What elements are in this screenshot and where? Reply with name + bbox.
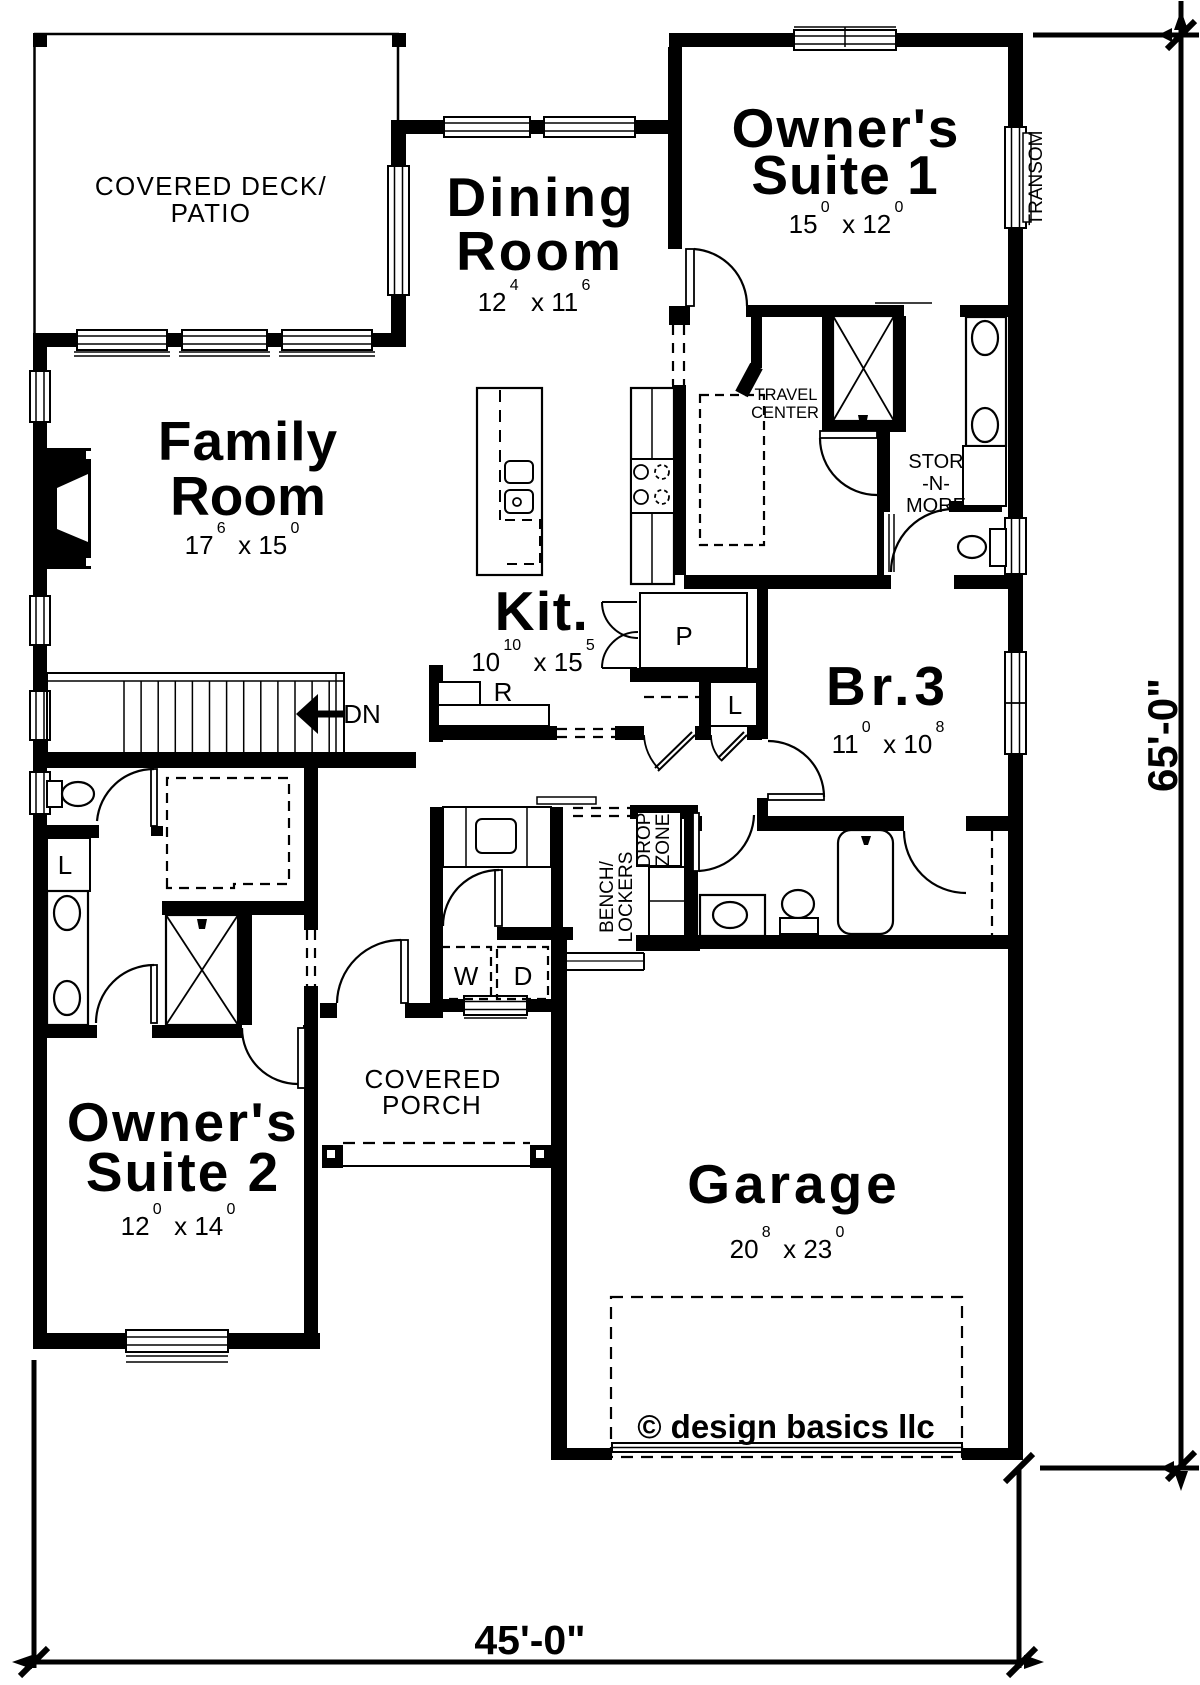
svg-text:P: P xyxy=(675,621,692,651)
svg-text:COVERED DECK/: COVERED DECK/ xyxy=(95,171,327,201)
svg-text:DN: DN xyxy=(343,699,381,729)
svg-text:W: W xyxy=(454,961,479,991)
svg-text:TRANSOM: TRANSOM xyxy=(1026,131,1047,226)
svg-text:Suite 1: Suite 1 xyxy=(751,144,938,206)
svg-text:ZONE: ZONE xyxy=(653,814,674,867)
svg-text:Room: Room xyxy=(170,465,326,527)
svg-text:-N-: -N- xyxy=(922,473,950,495)
svg-text:45'-0": 45'-0" xyxy=(474,1617,585,1663)
svg-text:L: L xyxy=(728,690,742,720)
svg-text:Br.3: Br.3 xyxy=(826,655,950,717)
svg-text:D: D xyxy=(514,961,533,991)
svg-text:65'-0": 65'-0" xyxy=(1139,678,1186,792)
svg-text:DROP: DROP xyxy=(634,813,655,868)
svg-text:PORCH: PORCH xyxy=(382,1090,482,1120)
svg-text:LOCKERS: LOCKERS xyxy=(616,852,637,943)
svg-text:STOR: STOR xyxy=(908,451,963,473)
svg-text:Kit.: Kit. xyxy=(495,580,590,642)
svg-text:PATIO: PATIO xyxy=(171,198,252,228)
svg-text:MORE: MORE xyxy=(906,495,966,517)
svg-text:Suite 2: Suite 2 xyxy=(86,1141,280,1203)
svg-text:L: L xyxy=(58,850,72,880)
svg-text:BENCH/: BENCH/ xyxy=(597,860,618,933)
svg-text:Family: Family xyxy=(158,410,338,472)
svg-text:Garage: Garage xyxy=(687,1153,901,1215)
svg-text:CENTER: CENTER xyxy=(751,404,819,422)
svg-text:Dining: Dining xyxy=(446,166,635,228)
svg-text:R: R xyxy=(494,677,513,707)
svg-text:TRAVEL: TRAVEL xyxy=(755,386,818,404)
svg-text:© design basics llc: © design basics llc xyxy=(637,1408,935,1445)
svg-text:Room: Room xyxy=(456,220,624,282)
